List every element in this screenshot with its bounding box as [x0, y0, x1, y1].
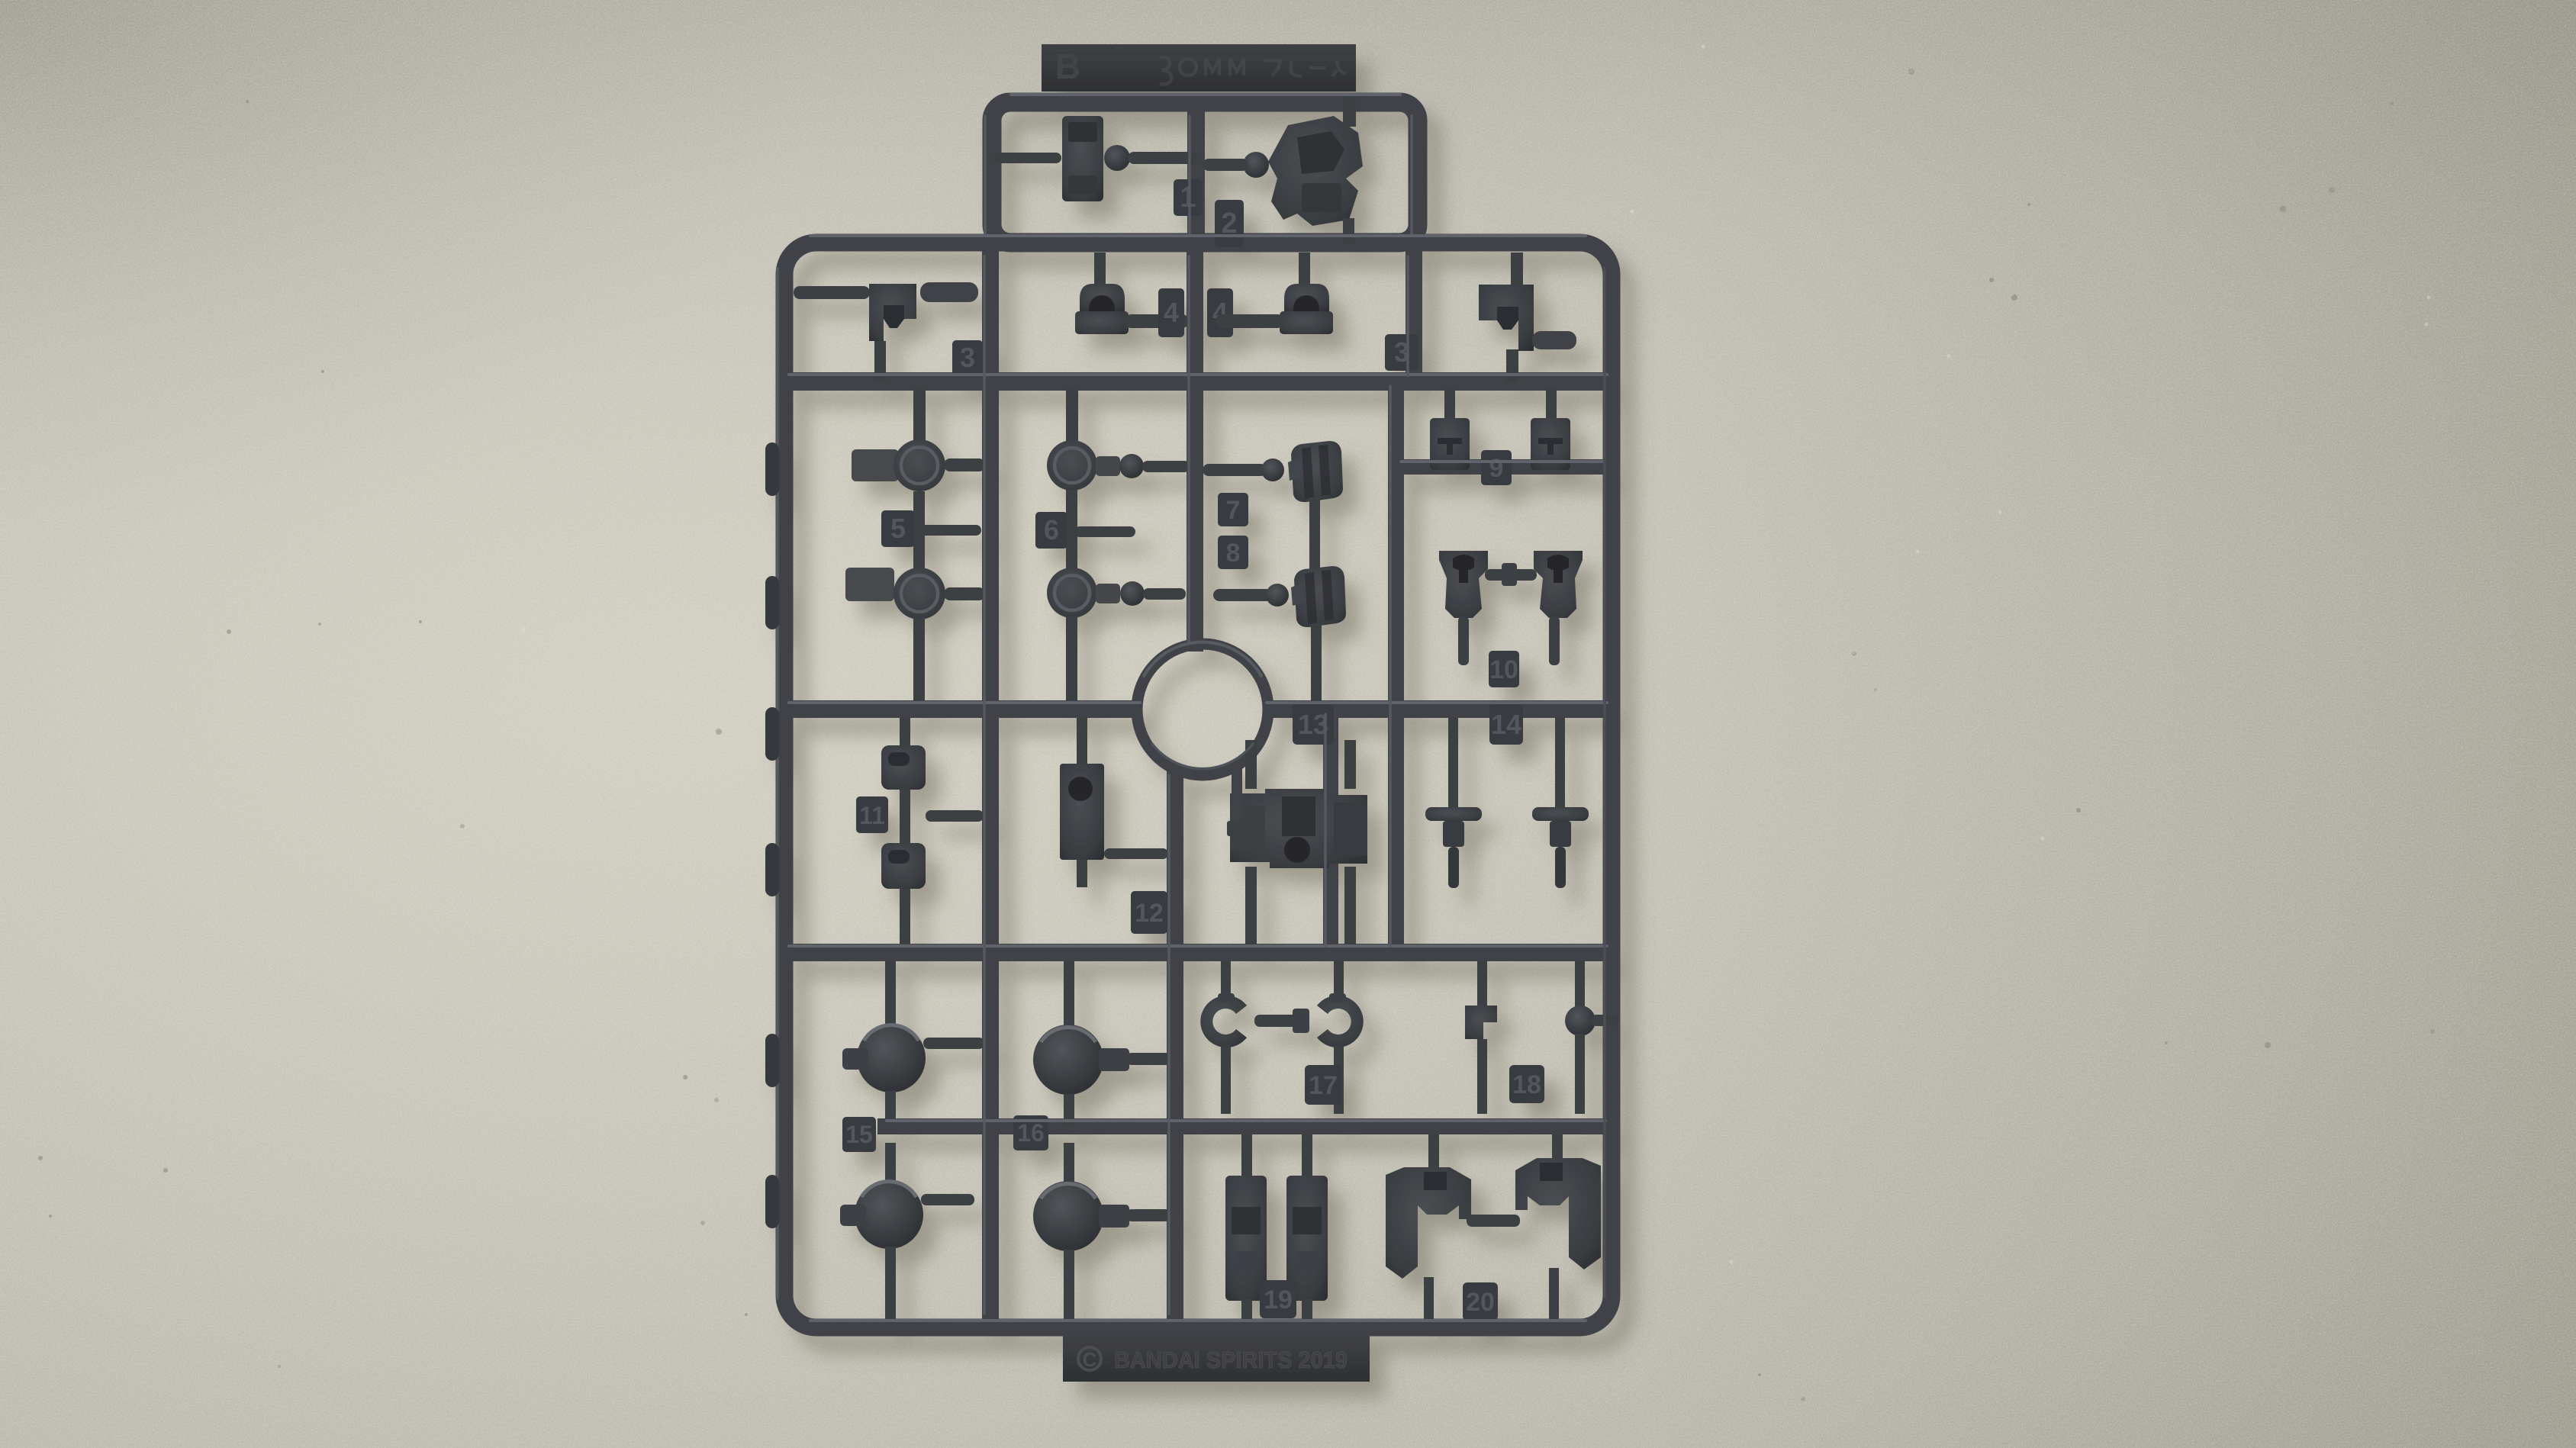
- svg-text:19: 19: [1264, 1286, 1293, 1314]
- svg-text:C: C: [1083, 1348, 1097, 1371]
- svg-text:17: 17: [1309, 1071, 1338, 1100]
- svg-text:11: 11: [859, 802, 885, 829]
- svg-text:4: 4: [1164, 297, 1179, 328]
- svg-text:B: B: [1055, 47, 1080, 86]
- svg-text:5: 5: [890, 513, 906, 544]
- svg-text:18: 18: [1512, 1070, 1541, 1099]
- svg-text:9: 9: [1489, 454, 1504, 483]
- svg-text:12: 12: [1135, 899, 1164, 928]
- svg-text:6: 6: [1044, 514, 1059, 545]
- svg-text:BANDAI SPIRITS 2019: BANDAI SPIRITS 2019: [1114, 1347, 1348, 1373]
- svg-text:13: 13: [1298, 709, 1328, 740]
- svg-text:14: 14: [1491, 709, 1521, 740]
- svg-text:16: 16: [1017, 1119, 1045, 1147]
- svg-text:15: 15: [845, 1121, 873, 1148]
- svg-text:3: 3: [960, 342, 975, 373]
- svg-text:10: 10: [1489, 655, 1518, 684]
- svg-text:7: 7: [1226, 496, 1241, 525]
- svg-text:8: 8: [1226, 539, 1241, 568]
- svg-text:1: 1: [1180, 182, 1196, 214]
- svg-text:20: 20: [1466, 1288, 1495, 1317]
